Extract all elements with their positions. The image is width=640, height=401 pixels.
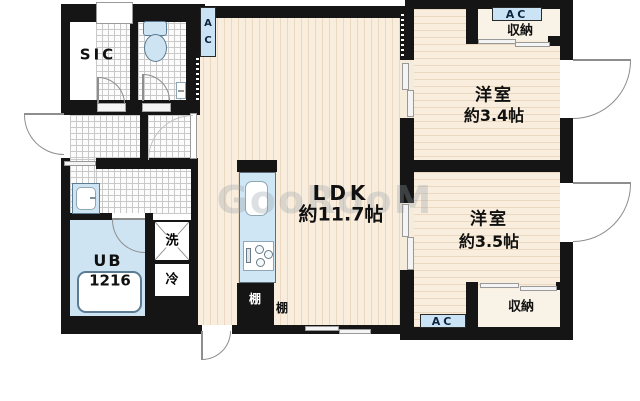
entrance-door-arc-icon — [24, 115, 64, 155]
room-label-sic: SIC — [80, 48, 116, 63]
wall — [560, 0, 573, 60]
wall — [466, 0, 478, 44]
shelf-label-ldk: 棚 — [276, 302, 288, 314]
room-label-ldk: LDK — [313, 183, 370, 203]
wall — [145, 213, 153, 300]
stove-burner — [256, 258, 265, 267]
room-size-bedroom2: 約3.5帖 — [459, 234, 519, 250]
wall — [560, 118, 573, 183]
sliding-door-panel — [407, 90, 414, 117]
washroom-sliding-door — [64, 161, 96, 166]
bedroom1-balcony-door-arc-icon — [573, 61, 631, 119]
wall-tick-marks — [401, 14, 404, 58]
ac-unit-badge-bedroom1: AC — [492, 7, 542, 21]
sliding-door-panel — [402, 63, 409, 90]
toilet-paper-holder-line — [178, 90, 184, 92]
bedroom2-balcony-door-arc-icon — [573, 184, 631, 242]
fridge-space: 冷 — [153, 262, 191, 298]
sic-door-threshold — [97, 103, 126, 112]
wall — [61, 158, 70, 334]
wall-tick-marks — [196, 58, 199, 102]
ac-unit-badge-bedroom2: AC — [420, 314, 466, 328]
closet-label-bottom: 収納 — [508, 301, 534, 314]
wall — [400, 270, 414, 340]
stove-burner — [255, 245, 264, 254]
sliding-door-panel — [407, 237, 414, 270]
washbasin-faucet — [90, 197, 96, 199]
toilet-door-threshold — [142, 103, 171, 112]
closet-sliding-door — [480, 283, 519, 288]
ac-label: AC — [432, 315, 455, 328]
wall — [61, 100, 200, 115]
floorplan: 洗 冷 A C AC AC GooRooM SIC 洋室 約3.4帖 収納 LD — [0, 0, 640, 401]
wall — [556, 282, 573, 290]
ac-label: AC — [506, 8, 529, 21]
stove-burner — [264, 250, 273, 259]
wall — [61, 316, 153, 334]
closet-sliding-door — [520, 286, 557, 291]
ldk-balcony-door-arc-icon — [202, 331, 231, 360]
room-ldk-floor — [196, 18, 400, 325]
shelf-label-kitchen: 棚 — [249, 293, 261, 305]
closet-sliding-door — [515, 42, 550, 47]
room-size-ldk: 約11.7帖 — [299, 206, 384, 225]
room-label-bedroom2: 洋室 — [470, 212, 508, 229]
sliding-window-panel — [339, 329, 371, 334]
washroom-floor — [96, 169, 191, 214]
kitchen-counter-cap — [237, 160, 277, 172]
wall — [414, 160, 573, 172]
wall — [560, 242, 573, 340]
wall — [466, 282, 478, 340]
sliding-window-panel — [305, 326, 339, 331]
window-notch — [96, 2, 133, 24]
toilet-bowl-icon — [144, 34, 167, 62]
room-label-bedroom1: 洋室 — [475, 88, 513, 105]
closet-label-top: 収納 — [507, 25, 533, 38]
stove-grill — [246, 248, 251, 263]
ac-letter: C — [204, 35, 211, 46]
kitchen-shelf-block — [237, 283, 274, 334]
wall — [405, 0, 573, 9]
ac-letter: A — [204, 18, 212, 29]
ac-unit-badge-ldk: A C — [200, 7, 216, 57]
room-label-bath: UB — [93, 253, 122, 269]
washer-label: 洗 — [164, 235, 179, 248]
closet-sliding-door — [478, 39, 516, 44]
room-size-bath: 1216 — [89, 274, 131, 289]
wall — [196, 6, 410, 18]
wall — [140, 114, 148, 158]
room-size-bedroom1: 約3.4帖 — [464, 108, 524, 124]
fridge-label: 冷 — [164, 274, 179, 287]
wall — [400, 327, 573, 340]
wall — [191, 158, 198, 300]
washer-pan: 洗 — [153, 220, 191, 262]
